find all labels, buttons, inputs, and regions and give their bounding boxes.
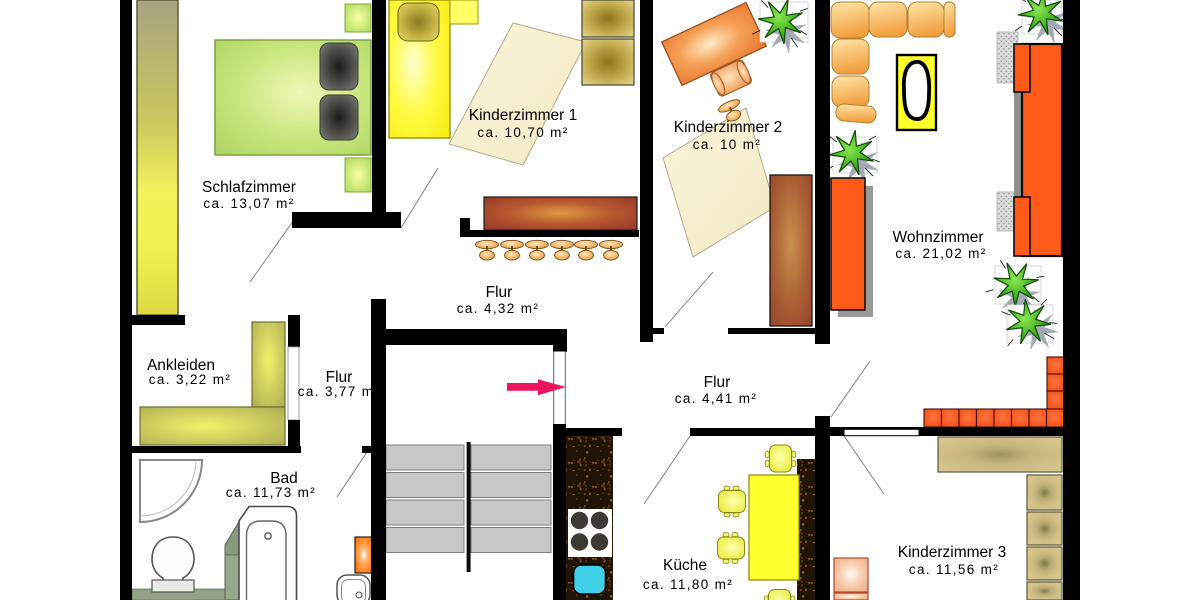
svg-text:ca. 3,77 m²: ca. 3,77 m² (298, 384, 380, 399)
svg-text:Küche: Küche (663, 557, 707, 574)
svg-text:ca. 11,80 m²: ca. 11,80 m² (643, 577, 733, 592)
svg-text:Flur: Flur (704, 374, 731, 391)
svg-text:Wohnzimmer: Wohnzimmer (892, 229, 983, 246)
svg-text:ca. 4,41 m²: ca. 4,41 m² (675, 391, 757, 406)
svg-text:ca. 11,73 m²: ca. 11,73 m² (226, 485, 316, 500)
svg-text:Schlafzimmer: Schlafzimmer (202, 179, 296, 196)
svg-text:Kinderzimmer 3: Kinderzimmer 3 (898, 544, 1007, 561)
svg-text:ca. 10,70 m²: ca. 10,70 m² (477, 125, 568, 140)
svg-text:ca. 3,22 m²: ca. 3,22 m² (149, 372, 231, 387)
svg-text:ca. 10 m²: ca. 10 m² (693, 137, 761, 152)
svg-text:ca. 11,56 m²: ca. 11,56 m² (909, 562, 999, 577)
svg-text:Kinderzimmer 1: Kinderzimmer 1 (469, 107, 578, 124)
svg-text:ca. 21,02 m²: ca. 21,02 m² (895, 246, 986, 261)
svg-text:Flur: Flur (486, 284, 513, 301)
svg-text:ca. 13,07 m²: ca. 13,07 m² (203, 196, 294, 211)
svg-text:Kinderzimmer 2: Kinderzimmer 2 (674, 119, 783, 136)
svg-text:ca. 4,32 m²: ca. 4,32 m² (457, 301, 539, 316)
